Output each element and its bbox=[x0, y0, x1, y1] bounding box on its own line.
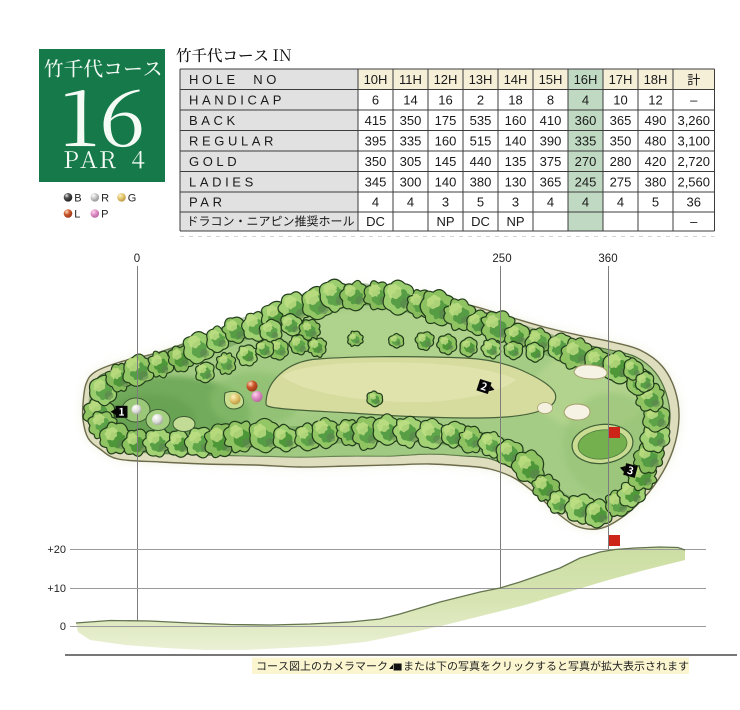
svg-text:480: 480 bbox=[645, 133, 667, 148]
svg-text:335: 335 bbox=[575, 133, 597, 148]
svg-text:4: 4 bbox=[407, 195, 414, 210]
svg-text:365: 365 bbox=[610, 113, 632, 128]
svg-text:2,720: 2,720 bbox=[677, 154, 710, 169]
svg-text:345: 345 bbox=[365, 174, 387, 189]
svg-text:14H: 14H bbox=[504, 72, 528, 87]
svg-text:DC: DC bbox=[366, 214, 385, 229]
svg-text:8: 8 bbox=[547, 92, 554, 107]
svg-text:335: 335 bbox=[400, 133, 422, 148]
svg-text:R: R bbox=[101, 192, 109, 204]
svg-text:13H: 13H bbox=[469, 72, 493, 87]
svg-text:10H: 10H bbox=[364, 72, 388, 87]
svg-text:360: 360 bbox=[575, 113, 597, 128]
svg-text:LADIES: LADIES bbox=[189, 174, 257, 189]
svg-text:+20: +20 bbox=[47, 544, 66, 556]
svg-text:515: 515 bbox=[470, 133, 492, 148]
svg-text:350: 350 bbox=[610, 133, 632, 148]
svg-text:145: 145 bbox=[435, 154, 457, 169]
svg-text:B: B bbox=[74, 192, 81, 204]
svg-text:10: 10 bbox=[613, 92, 627, 107]
svg-text:2,560: 2,560 bbox=[677, 174, 710, 189]
svg-text:410: 410 bbox=[540, 113, 562, 128]
svg-text:390: 390 bbox=[540, 133, 562, 148]
svg-text:36: 36 bbox=[687, 195, 701, 210]
svg-text:HANDICAP: HANDICAP bbox=[189, 92, 285, 107]
svg-text:12: 12 bbox=[648, 92, 662, 107]
svg-text:380: 380 bbox=[645, 174, 667, 189]
svg-text:175: 175 bbox=[435, 113, 457, 128]
svg-text:4: 4 bbox=[372, 195, 379, 210]
svg-text:245: 245 bbox=[575, 174, 597, 189]
svg-text:275: 275 bbox=[610, 174, 632, 189]
svg-text:P: P bbox=[101, 209, 108, 221]
svg-text:–: – bbox=[690, 92, 698, 107]
svg-text:5: 5 bbox=[477, 195, 484, 210]
svg-text:365: 365 bbox=[540, 174, 562, 189]
svg-text:140: 140 bbox=[505, 133, 527, 148]
svg-text:18: 18 bbox=[508, 92, 522, 107]
svg-text:16: 16 bbox=[438, 92, 452, 107]
svg-text:280: 280 bbox=[610, 154, 632, 169]
svg-text:–: – bbox=[690, 214, 698, 229]
svg-text:3: 3 bbox=[512, 195, 519, 210]
svg-text:300: 300 bbox=[400, 174, 422, 189]
svg-text:NP: NP bbox=[436, 214, 454, 229]
svg-text:DC: DC bbox=[471, 214, 490, 229]
svg-text:360: 360 bbox=[598, 253, 617, 265]
svg-text:375: 375 bbox=[540, 154, 562, 169]
svg-text:4: 4 bbox=[547, 195, 554, 210]
svg-text:PAR: PAR bbox=[189, 195, 226, 210]
svg-text:3,100: 3,100 bbox=[677, 133, 710, 148]
svg-text:415: 415 bbox=[365, 113, 387, 128]
svg-text:HOLE NO: HOLE NO bbox=[189, 72, 280, 87]
svg-text:380: 380 bbox=[470, 174, 492, 189]
svg-text:+10: +10 bbox=[47, 583, 66, 595]
svg-text:5: 5 bbox=[652, 195, 659, 210]
svg-text:420: 420 bbox=[645, 154, 667, 169]
svg-text:395: 395 bbox=[365, 133, 387, 148]
svg-text:535: 535 bbox=[470, 113, 492, 128]
svg-text:3: 3 bbox=[442, 195, 449, 210]
svg-text:350: 350 bbox=[365, 154, 387, 169]
svg-text:12H: 12H bbox=[434, 72, 458, 87]
svg-text:135: 135 bbox=[505, 154, 527, 169]
svg-text:6: 6 bbox=[372, 92, 379, 107]
svg-text:250: 250 bbox=[492, 253, 511, 265]
svg-text:130: 130 bbox=[505, 174, 527, 189]
svg-text:17H: 17H bbox=[609, 72, 633, 87]
svg-text:490: 490 bbox=[645, 113, 667, 128]
svg-text:G: G bbox=[128, 192, 137, 204]
svg-text:160: 160 bbox=[435, 133, 457, 148]
svg-text:16H: 16H bbox=[574, 72, 598, 87]
svg-text:15H: 15H bbox=[539, 72, 563, 87]
svg-text:18H: 18H bbox=[644, 72, 668, 87]
svg-text:0: 0 bbox=[134, 253, 140, 265]
svg-text:350: 350 bbox=[400, 113, 422, 128]
svg-text:4: 4 bbox=[617, 195, 624, 210]
svg-text:0: 0 bbox=[60, 621, 66, 633]
svg-text:NP: NP bbox=[506, 214, 524, 229]
svg-text:305: 305 bbox=[400, 154, 422, 169]
svg-text:270: 270 bbox=[575, 154, 597, 169]
svg-text:440: 440 bbox=[470, 154, 492, 169]
svg-text:GOLD: GOLD bbox=[189, 154, 240, 169]
svg-text:BACK: BACK bbox=[189, 113, 239, 128]
svg-text:3,260: 3,260 bbox=[677, 113, 710, 128]
svg-text:11H: 11H bbox=[399, 72, 422, 87]
svg-text:L: L bbox=[74, 209, 80, 221]
svg-text:160: 160 bbox=[505, 113, 527, 128]
svg-text:4: 4 bbox=[582, 195, 589, 210]
svg-text:2: 2 bbox=[477, 92, 484, 107]
svg-text:REGULAR: REGULAR bbox=[189, 133, 277, 148]
svg-text:14: 14 bbox=[403, 92, 417, 107]
svg-text:4: 4 bbox=[582, 92, 589, 107]
svg-text:140: 140 bbox=[435, 174, 457, 189]
